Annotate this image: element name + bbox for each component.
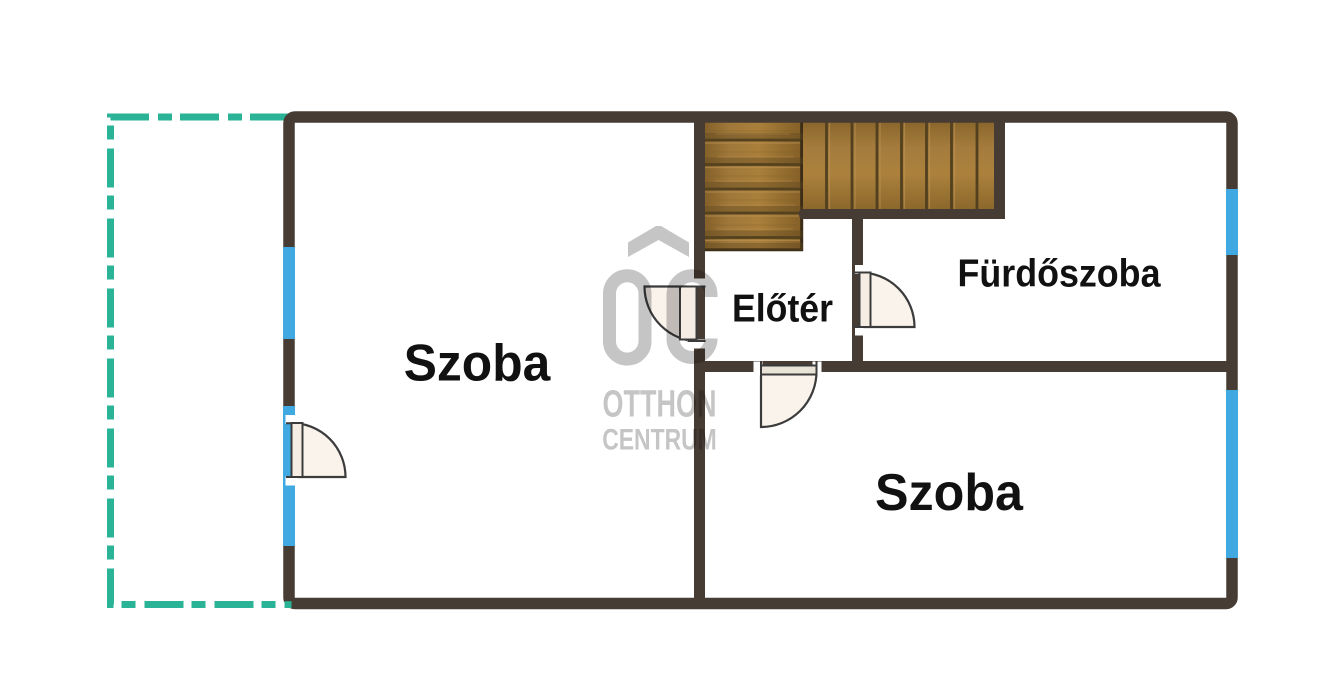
svg-text:Fürdőszoba: Fürdőszoba	[958, 253, 1162, 296]
svg-text:Szoba: Szoba	[404, 335, 552, 393]
svg-text:Előtér: Előtér	[732, 288, 833, 331]
svg-text:Szoba: Szoba	[875, 464, 1024, 522]
svg-text:CENTRUM: CENTRUM	[602, 424, 717, 457]
svg-text:OTTHON: OTTHON	[603, 384, 717, 426]
